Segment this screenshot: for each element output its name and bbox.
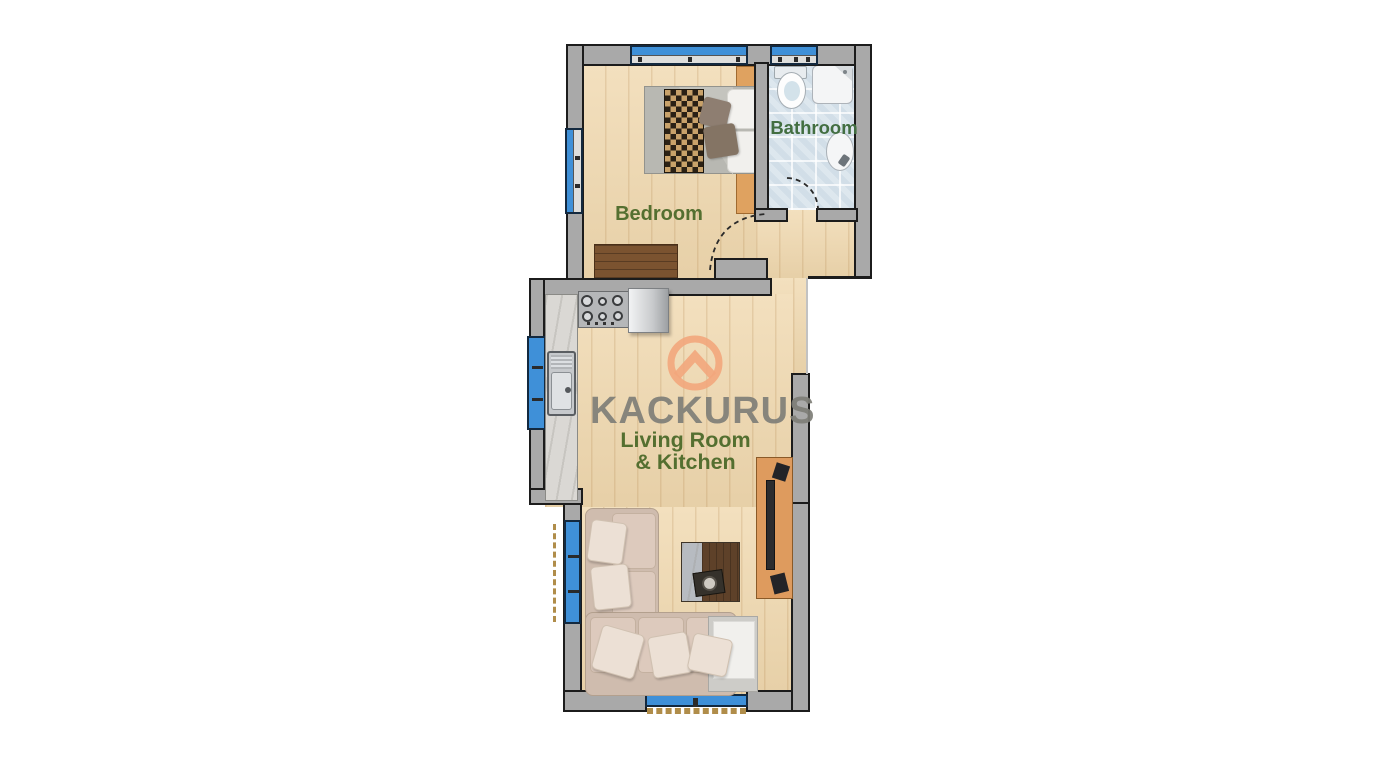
dresser (594, 244, 678, 282)
sink-faucet-dot (565, 387, 571, 393)
sofa-pillow-1 (586, 519, 627, 566)
bathroom-top-window (770, 45, 818, 65)
bedroom-top-window (630, 45, 748, 65)
bedroom-left-window (565, 128, 583, 214)
sofa-pillow-5 (686, 632, 733, 677)
sink-drainboard (551, 355, 572, 369)
refrigerator (628, 288, 669, 333)
brand-wordmark: KACKURUS (590, 390, 810, 433)
corridor-edge-line (806, 278, 808, 374)
speaker-bottom (770, 572, 789, 594)
right-wall-upper (854, 44, 872, 279)
bedroom-left-window-sill (573, 130, 581, 212)
double-bed (644, 86, 764, 174)
kitchen-window (527, 336, 546, 430)
balcony-dashed-line-left (553, 524, 556, 622)
bedroom-label: Bedroom (598, 203, 720, 226)
living-left-window (564, 520, 581, 624)
bedroom-bathroom-divider-wall (754, 62, 769, 222)
serving-tray (692, 569, 725, 597)
stove (578, 291, 629, 328)
tv-console (756, 457, 793, 599)
balcony-dashed-line-bottom (647, 708, 746, 714)
toilet-bowl (777, 72, 806, 109)
toilet-seat (784, 81, 800, 101)
sink-faucet (838, 154, 851, 168)
kitchen-sink (547, 351, 576, 416)
shower-drain (843, 70, 847, 74)
hallway-bottom-edge (808, 276, 872, 279)
bathroom-bottom-wall-right (816, 208, 858, 222)
checkered-runner (664, 89, 704, 173)
sofa-pillow-4 (647, 631, 694, 679)
bathroom-bottom-wall-left (754, 208, 788, 222)
coffee-table (681, 542, 740, 602)
bathroom-label: Bathroom (764, 117, 864, 139)
living-label-line2: & Kitchen (593, 450, 778, 475)
bed-pillow-taupe-2 (703, 123, 740, 160)
tv (766, 480, 775, 570)
floorplan-canvas: KACKURUS Bedroom Bathroom Living Room & … (0, 0, 1400, 760)
right-wall-seam (793, 502, 808, 504)
sofa-pillow-2 (590, 563, 632, 611)
shower (812, 65, 853, 104)
